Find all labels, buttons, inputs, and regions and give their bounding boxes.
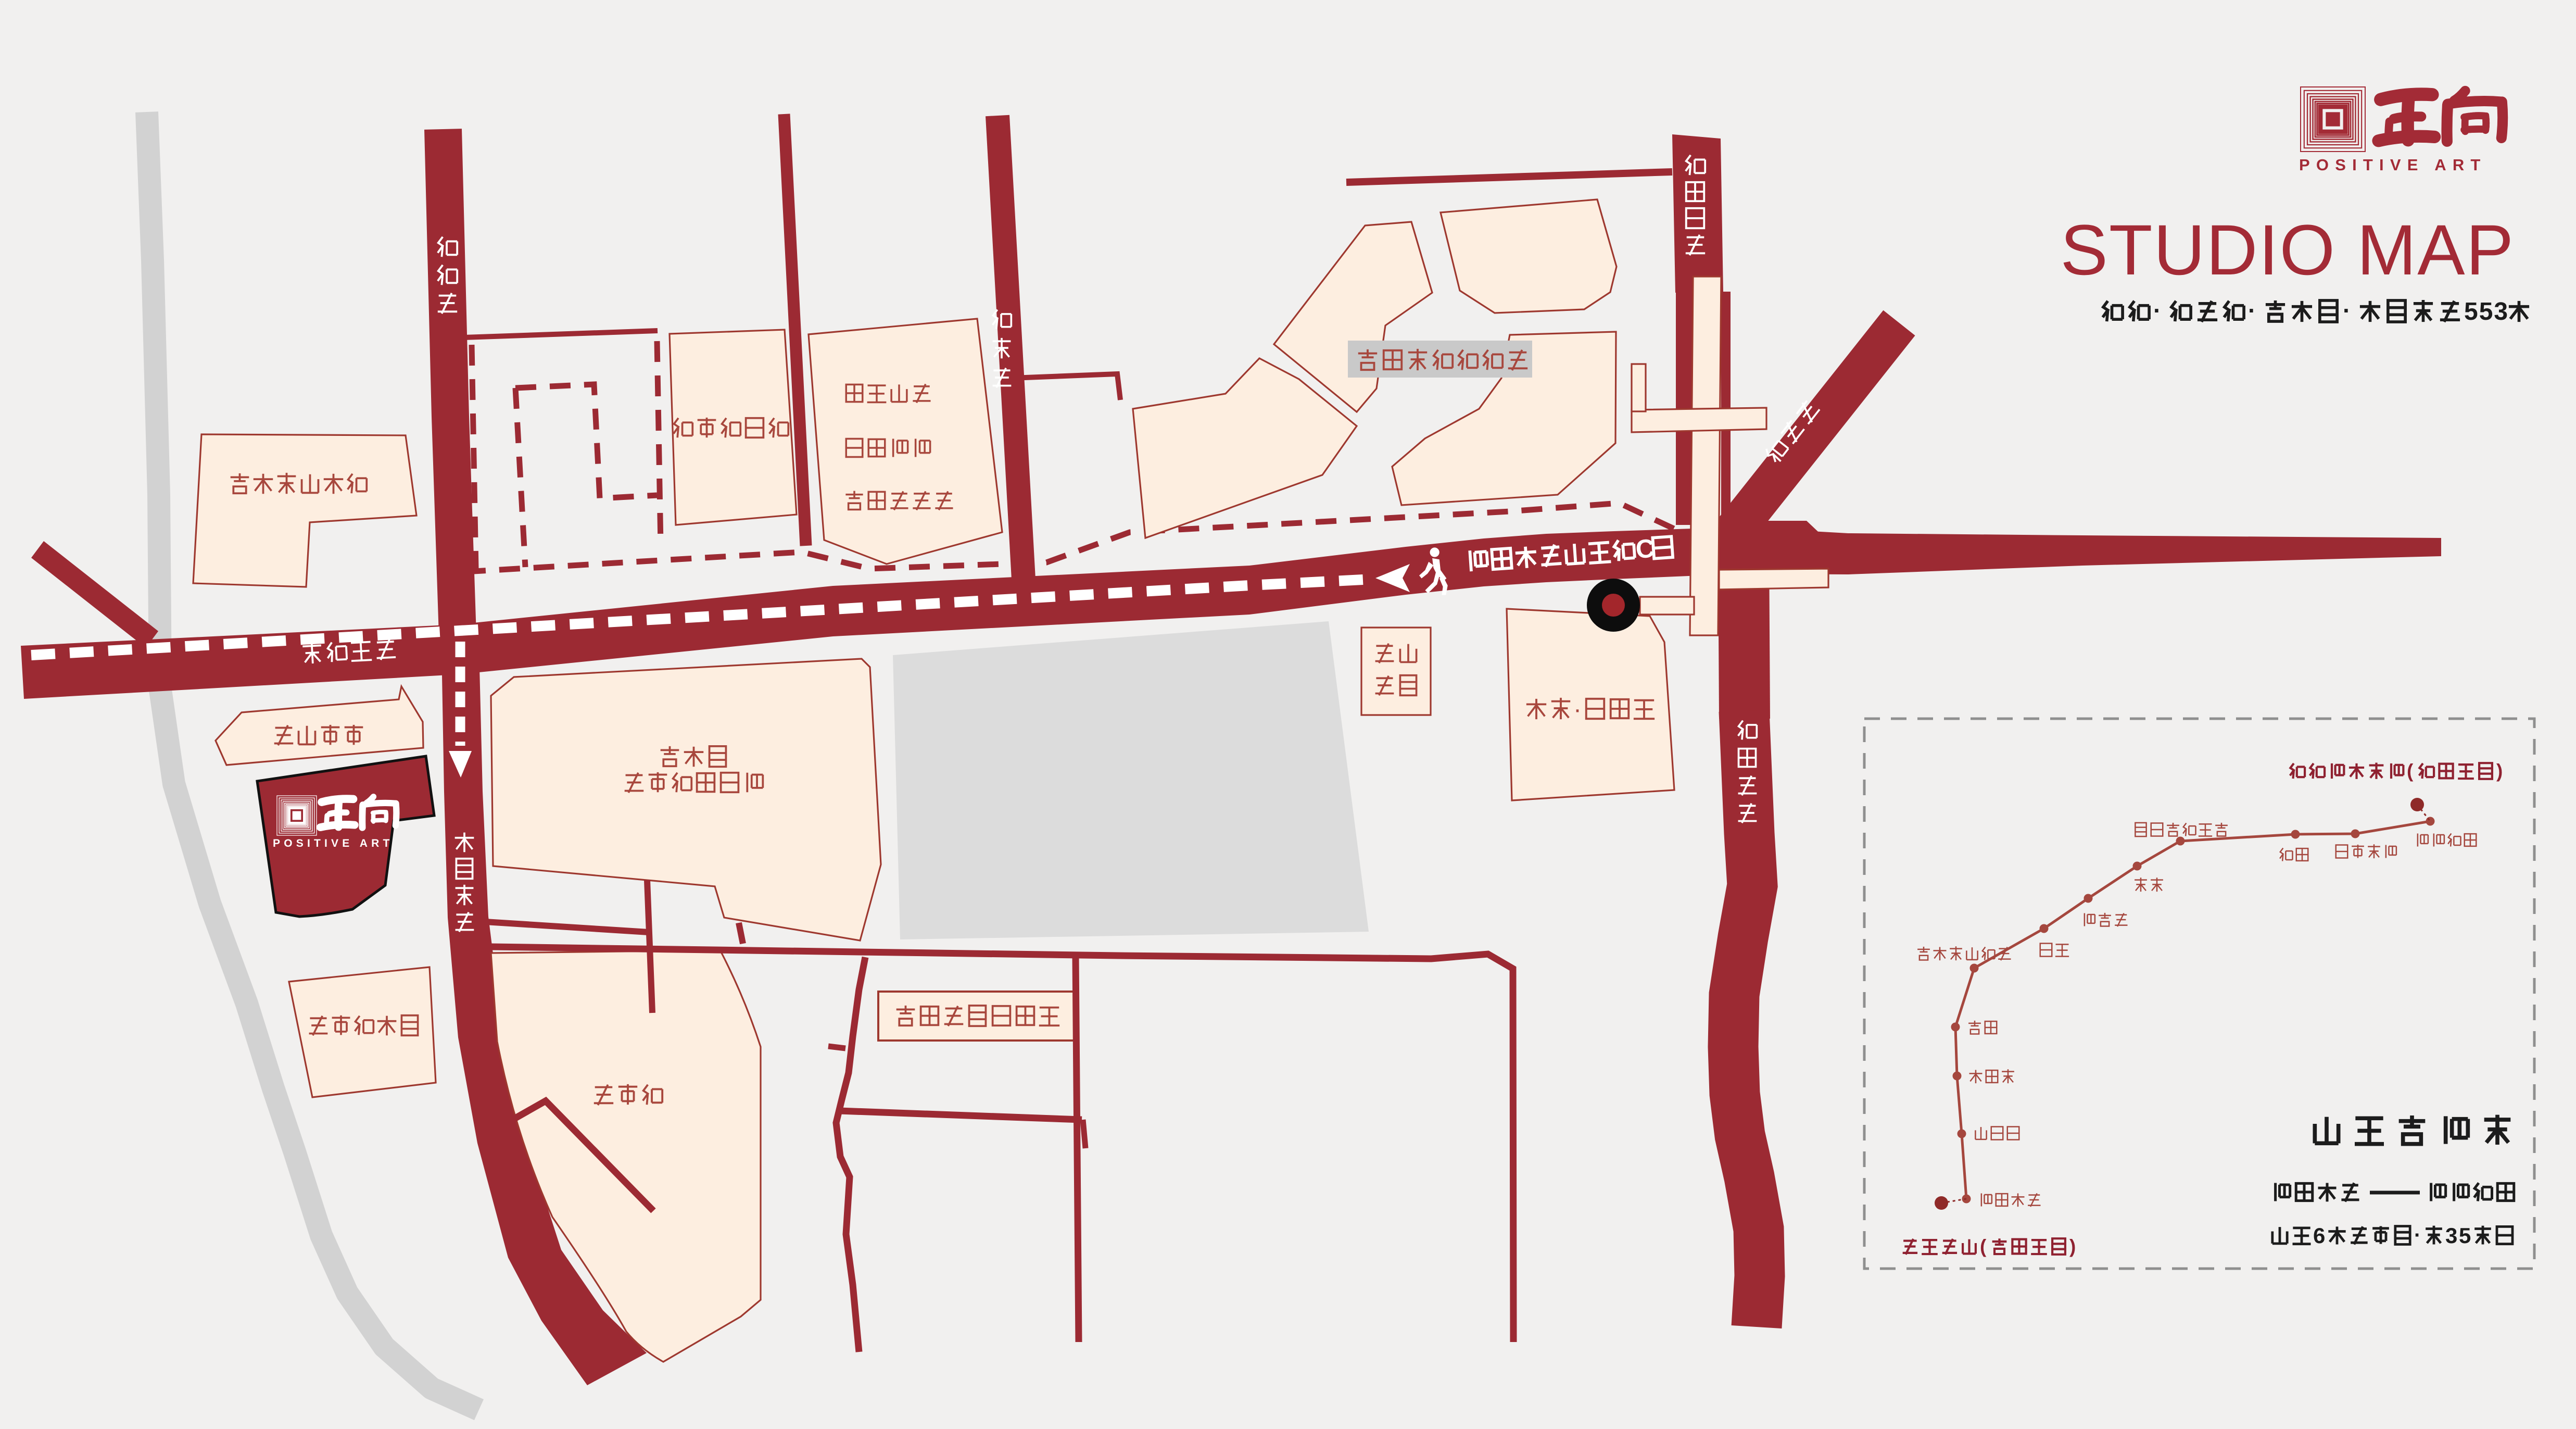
svg-text:·: · — [2153, 297, 2161, 324]
svg-text:POSITIVE ART: POSITIVE ART — [273, 837, 393, 849]
svg-text:POSITIVE ART: POSITIVE ART — [2299, 156, 2487, 174]
svg-text:·: · — [2248, 297, 2256, 324]
svg-text:): ) — [2069, 1236, 2076, 1257]
svg-text:·: · — [2343, 297, 2351, 324]
svg-text:STUDIO MAP: STUDIO MAP — [2060, 210, 2515, 290]
svg-text:): ) — [2496, 760, 2503, 782]
svg-text:3: 3 — [2445, 1223, 2457, 1248]
svg-text:553: 553 — [2464, 298, 2509, 325]
svg-text:·: · — [1573, 696, 1582, 723]
svg-text:(: ( — [1980, 1236, 1987, 1257]
svg-text:5: 5 — [2459, 1223, 2471, 1248]
svg-text:(: ( — [2407, 760, 2414, 782]
svg-text:·: · — [2414, 1224, 2421, 1247]
svg-text:6: 6 — [2313, 1223, 2325, 1248]
